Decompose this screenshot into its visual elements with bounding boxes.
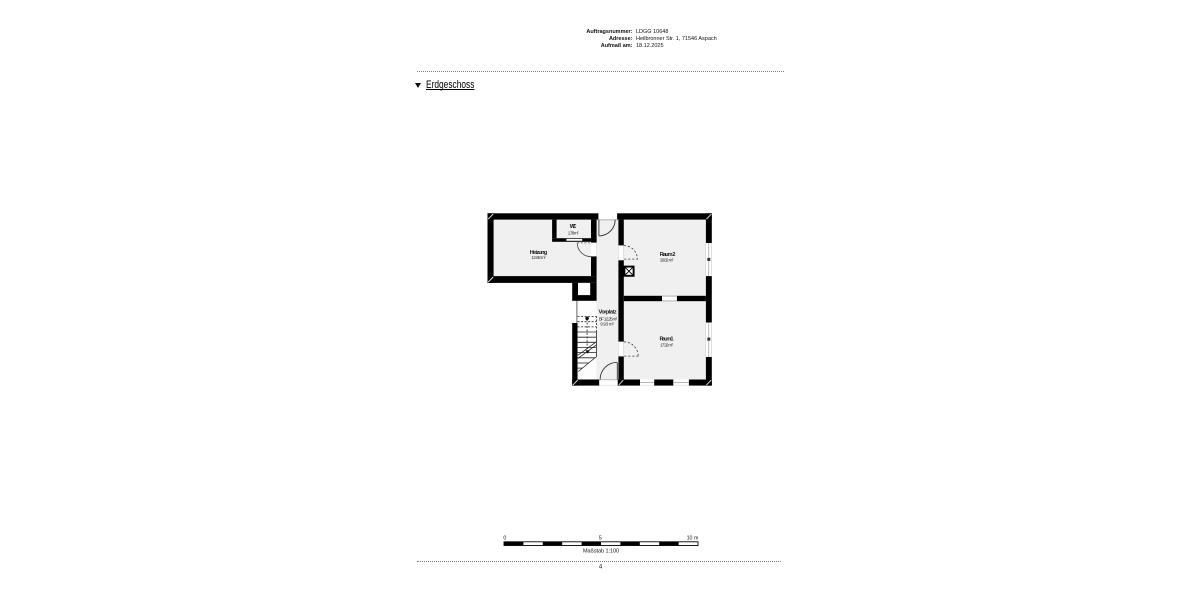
svg-text:5: 5 [599, 536, 602, 542]
svg-text:16.82 m²: 16.82 m² [660, 258, 674, 263]
svg-text:17.32 m²: 17.32 m² [660, 342, 673, 347]
svg-text:1.78 m²: 1.78 m² [568, 230, 579, 235]
svg-text:Maßstab 1:100: Maßstab 1:100 [583, 549, 619, 555]
svg-text:BF 12.25 m²: BF 12.25 m² [599, 316, 618, 321]
svg-text:0: 0 [503, 536, 506, 542]
svg-text:Vorplatz: Vorplatz [599, 310, 617, 316]
svg-text:10 m: 10 m [687, 536, 699, 542]
svg-text:12.68 m²: 12.68 m² [531, 255, 546, 260]
svg-text:WC: WC [570, 224, 577, 230]
svg-text:9.93 m²: 9.93 m² [600, 322, 614, 327]
svg-text:4: 4 [599, 564, 603, 570]
